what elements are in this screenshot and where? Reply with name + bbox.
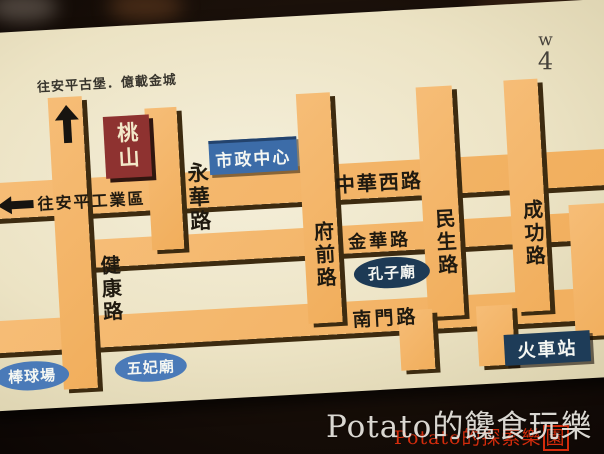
- city-hall-sign: 市政中心: [208, 136, 298, 175]
- photo-background: 往安平古堡．億載金城 w 4 往安平工業區 中華西路 金華路 南門路: [0, 0, 604, 454]
- wufei-temple-sign: 五妃廟: [114, 351, 188, 384]
- map-card: 往安平古堡．億載金城 w 4 往安平工業區 中華西路 金華路 南門路: [0, 0, 604, 412]
- road-vertical-yonghua: [144, 107, 184, 251]
- road-label-nanmen: 南門路: [352, 302, 419, 333]
- background-blur-blob: [108, 0, 183, 22]
- road-label-jinhua: 金華路: [347, 225, 411, 254]
- road-label-fuqian: 府前路: [308, 220, 341, 291]
- confucius-temple-sign: 孔子廟: [353, 255, 431, 290]
- handwritten-note-line2: 4: [538, 49, 553, 73]
- road-label-chenggong: 成功路: [517, 198, 550, 269]
- up-arrow-icon: [54, 104, 80, 143]
- taoshan-restaurant-sign: 桃山: [103, 114, 152, 178]
- road-label-minsheng: 民生路: [429, 207, 462, 278]
- train-station-sign: 火車站: [504, 330, 592, 366]
- watermark-primary: Potato的饞食玩樂: [326, 401, 592, 446]
- background-blur-blob: [0, 0, 58, 22]
- left-arrow-stem: [9, 200, 33, 209]
- direction-note-anping-fort: 往安平古堡．億載金城: [36, 69, 177, 96]
- road-vertical-east-edge: [568, 203, 604, 337]
- handwritten-note: w 4: [538, 32, 553, 73]
- baseball-field-sign: 棒球場: [0, 359, 70, 392]
- road-label-jiankang: 健康路: [95, 254, 128, 325]
- left-arrow-icon: [0, 195, 34, 215]
- road-label-zhonghua-west: 中華西路: [334, 164, 423, 198]
- road-vertical-chenggong: [503, 79, 550, 313]
- road-vertical-minsheng: [416, 85, 465, 317]
- up-arrow-stem: [63, 119, 72, 143]
